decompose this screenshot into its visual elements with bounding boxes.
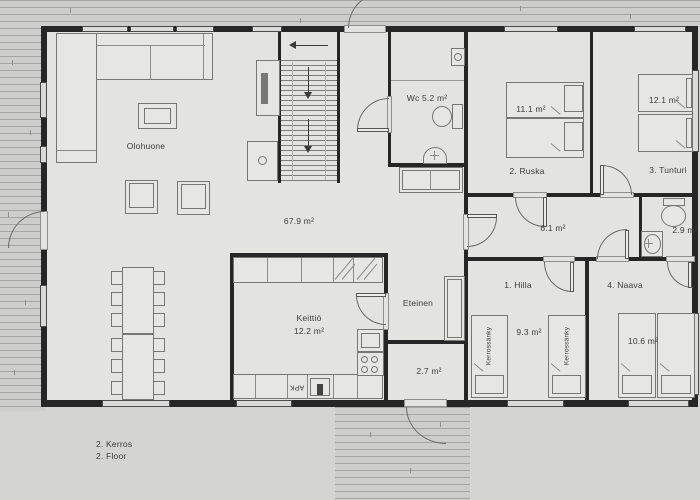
- window: [692, 70, 699, 152]
- dining-chair: [111, 271, 123, 285]
- window: [130, 26, 174, 32]
- stair-arrow-left-icon: [289, 41, 296, 49]
- toilet-bowl: [432, 106, 452, 127]
- dining-table: [122, 334, 154, 400]
- sink-basin: [644, 234, 661, 254]
- window: [634, 26, 686, 32]
- cabinet-divider: [353, 258, 354, 282]
- window: [504, 26, 558, 32]
- door-leaf: [356, 293, 386, 297]
- area-label-keittio: 12.2 m²: [294, 326, 324, 336]
- bed-pillow: [475, 375, 504, 394]
- window: [507, 400, 564, 407]
- dining-chair: [111, 359, 123, 373]
- window: [82, 26, 128, 32]
- dining-chair: [153, 381, 165, 395]
- room-label-ruska: 2. Ruska: [509, 166, 544, 176]
- deck-plank-joint: [30, 130, 31, 135]
- oven-handle: [317, 384, 323, 395]
- cabinet-divider: [333, 375, 334, 398]
- window: [236, 400, 292, 407]
- door-leaf: [625, 230, 629, 259]
- window: [40, 82, 47, 118]
- deck-plank-joint: [12, 60, 13, 65]
- bed-pillow: [552, 375, 581, 394]
- room-label-keittio: Keittiö: [296, 313, 321, 323]
- window: [628, 400, 689, 407]
- sofa-armrest-line: [203, 34, 204, 79]
- wc-partition-line: [391, 80, 464, 81]
- armchair-inner: [181, 184, 206, 209]
- window: [40, 146, 47, 163]
- area-label-tunturi: 12.1 m²: [649, 95, 679, 105]
- window: [252, 26, 282, 32]
- water-heater-dial: [454, 53, 462, 61]
- room-label-wc: Wc 5.2 m²: [407, 93, 448, 103]
- dining-chair: [153, 313, 165, 327]
- wall: [590, 32, 593, 195]
- deck-plank-joint: [300, 18, 301, 23]
- coffee-table-inner: [144, 108, 171, 124]
- dining-chair: [111, 338, 123, 352]
- kitchen-upper-cabinets: [233, 257, 383, 283]
- floor-label-fi: 2. Kerros: [96, 439, 132, 449]
- window: [176, 26, 214, 32]
- deck-plank-joint: [630, 14, 631, 19]
- hall-closet-inner: [402, 170, 460, 190]
- room-label-naava: 4. Naava: [607, 280, 643, 290]
- bed-pillow: [686, 118, 692, 148]
- room-label-hilla: 1. Hilla: [504, 280, 532, 290]
- stair-arrow-down-icon: [304, 92, 312, 99]
- door-opening: [404, 399, 447, 407]
- deck-plank-joint: [14, 370, 15, 375]
- kitchen-counter-inner: [361, 333, 380, 348]
- label-dishwasher: APK: [290, 384, 305, 391]
- stove-burner: [371, 366, 378, 373]
- cabinet-divider: [287, 375, 288, 398]
- stair-arrow-shaft: [308, 67, 309, 92]
- door-leaf: [600, 165, 604, 195]
- cabinet-divider: [255, 375, 256, 398]
- label-bunk-bed: Kerrossänky: [486, 327, 493, 365]
- window: [102, 400, 170, 407]
- staircase: [281, 60, 337, 182]
- deck-plank-joint: [410, 468, 411, 473]
- stove: [357, 352, 384, 376]
- stair-arrow-shaft: [308, 119, 309, 146]
- label-bunk-bed: Kerrossänky: [564, 327, 571, 365]
- deck-plank-joint: [70, 8, 71, 13]
- door-leaf: [467, 214, 497, 218]
- room-label-tunturi: 3. Tunturi: [649, 165, 686, 175]
- cabinet-divider: [267, 258, 268, 282]
- deck-plank-joint: [520, 6, 521, 11]
- bed-pillow: [564, 85, 583, 112]
- dining-chair: [153, 292, 165, 306]
- area-label-wc-small: 2.9 m²: [672, 225, 697, 235]
- cabinet-divider: [307, 375, 308, 398]
- sink-tap-cross: [434, 151, 435, 160]
- dining-table: [122, 267, 154, 334]
- wall: [337, 32, 340, 183]
- window: [40, 285, 47, 327]
- stair-rail: [325, 62, 326, 180]
- bed-pillow: [564, 122, 583, 151]
- tv: [261, 73, 268, 104]
- area-label-porch: 2.7 m²: [416, 366, 441, 376]
- sofa-cushion-line: [97, 45, 205, 46]
- eteinen-wardrobe-inner: [447, 279, 462, 338]
- deck-plank-joint: [370, 432, 371, 437]
- sofa-armrest-line: [57, 150, 96, 151]
- toilet-tank: [452, 104, 463, 129]
- dining-chair: [111, 381, 123, 395]
- floor-plan: Olohuone 67.9 m² Keittiö 12.2 m² Eteinen…: [0, 0, 700, 500]
- stove-burner: [371, 356, 378, 363]
- dining-chair: [153, 359, 165, 373]
- room-label-eteinen: Eteinen: [403, 298, 433, 308]
- tv-stand: [256, 60, 280, 116]
- area-label-naava: 10.6 m²: [628, 336, 658, 346]
- area-label-total: 67.9 m²: [284, 216, 314, 226]
- area-label-hilla: 9.3 m²: [516, 327, 541, 337]
- door-leaf: [570, 262, 574, 292]
- toilet-bowl: [661, 205, 686, 227]
- area-label-ruska: 11.1 m²: [516, 104, 546, 114]
- area-label-hallway: 6.1 m²: [540, 223, 565, 233]
- room-label-olohuone: Olohuone: [127, 141, 165, 151]
- sofa-cushion-line: [150, 46, 151, 79]
- stove-burner: [361, 356, 368, 363]
- cabinet-divider: [357, 375, 358, 398]
- stove-burner: [361, 366, 368, 373]
- bed-pillow: [661, 375, 691, 394]
- wall: [464, 257, 694, 261]
- deck-plank-joint: [25, 300, 26, 305]
- dining-chair: [111, 313, 123, 327]
- floor-label-en: 2. Floor: [96, 451, 126, 461]
- stair-arrow-down-icon: [304, 146, 312, 153]
- dining-chair: [153, 338, 165, 352]
- sink-tap-cross: [648, 239, 649, 248]
- dining-chair: [111, 292, 123, 306]
- door-leaf: [688, 262, 692, 288]
- cabinet-divider: [301, 258, 302, 282]
- bed-pillow: [622, 375, 652, 394]
- door-leaf: [357, 128, 389, 132]
- closet-divider: [430, 170, 431, 190]
- armchair-inner: [129, 183, 154, 208]
- deck-bottom: [335, 407, 470, 500]
- stair-rail: [292, 62, 293, 180]
- dining-chair: [153, 271, 165, 285]
- bed-pillow: [686, 78, 692, 108]
- sofa-chaise: [56, 33, 97, 163]
- deck-plank-joint: [8, 212, 9, 217]
- wall: [464, 193, 694, 197]
- stair-arrow-shaft: [296, 45, 328, 46]
- fireplace-flue: [258, 156, 267, 165]
